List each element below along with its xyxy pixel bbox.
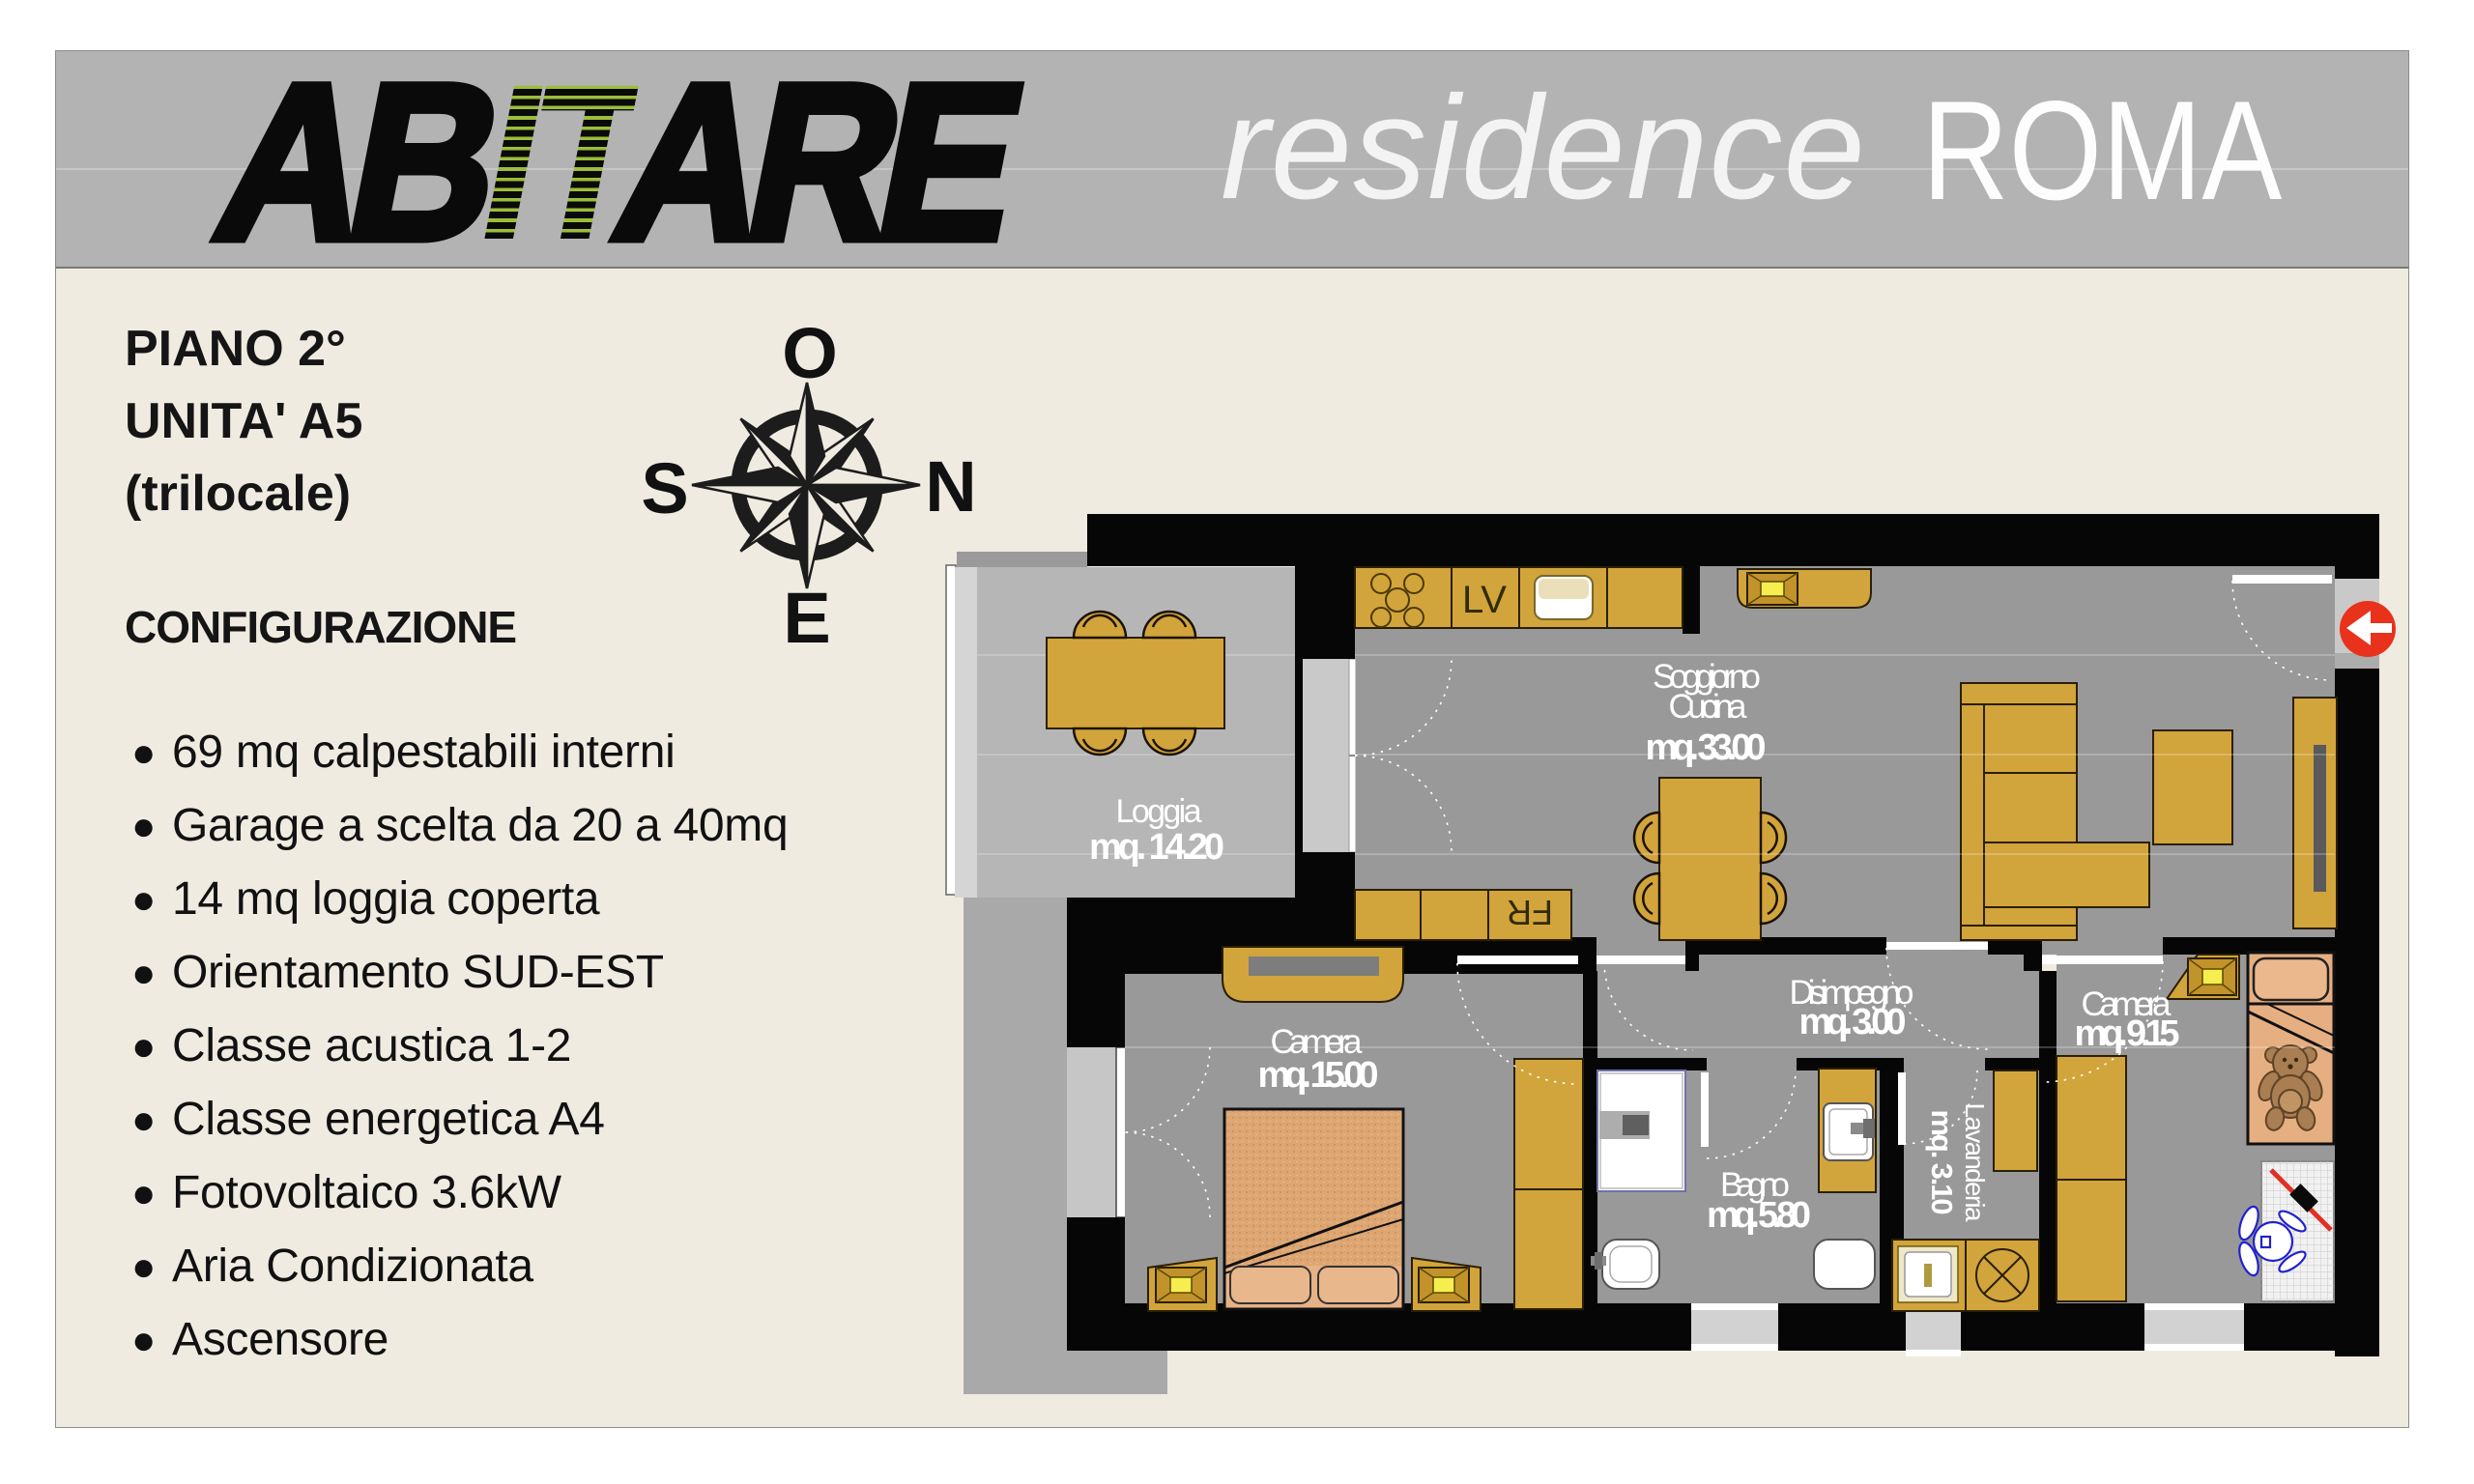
svg-text:mq. 3.10: mq. 3.10	[1925, 1110, 1959, 1215]
svg-text:mq. 15.00: mq. 15.00	[1258, 1055, 1379, 1096]
svg-text:LV: LV	[1462, 579, 1507, 621]
svg-text:mq. 33.00: mq. 33.00	[1646, 728, 1767, 768]
svg-text:E: E	[783, 578, 830, 658]
svg-text:N: N	[925, 446, 976, 527]
svg-text:Loggia: Loggia	[1116, 793, 1202, 830]
svg-text:mq. 3.00: mq. 3.00	[1799, 1002, 1907, 1042]
svg-text:O: O	[782, 313, 838, 393]
svg-text:S: S	[641, 448, 688, 528]
svg-text:Lavanderia: Lavanderia	[1960, 1103, 1990, 1222]
svg-text:FR: FR	[1507, 893, 1553, 932]
svg-text:Cucina: Cucina	[1669, 688, 1748, 726]
svg-text:mq. 9.15: mq. 9.15	[2075, 1013, 2180, 1054]
svg-text:mq. 5.80: mq. 5.80	[1707, 1195, 1811, 1236]
svg-text:mq. 14.20: mq. 14.20	[1089, 827, 1224, 868]
